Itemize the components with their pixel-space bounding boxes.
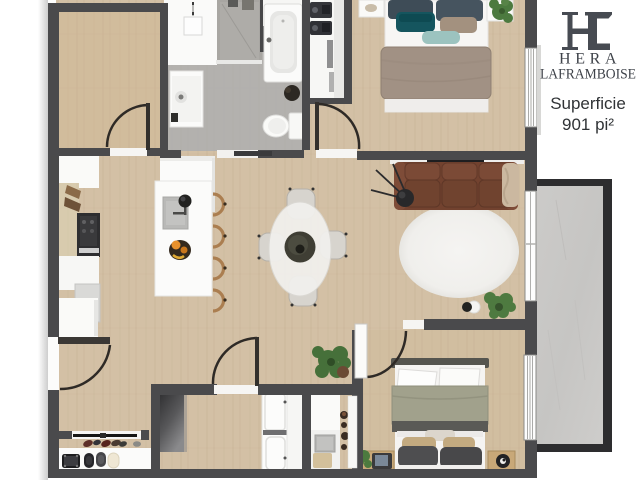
svg-text:HERA: HERA [559,51,619,68]
svg-text:Superficie: Superficie [550,94,626,113]
svg-text:901 pi²: 901 pi² [562,115,614,134]
svg-text:LAFRAMBOISE: LAFRAMBOISE [540,67,636,83]
